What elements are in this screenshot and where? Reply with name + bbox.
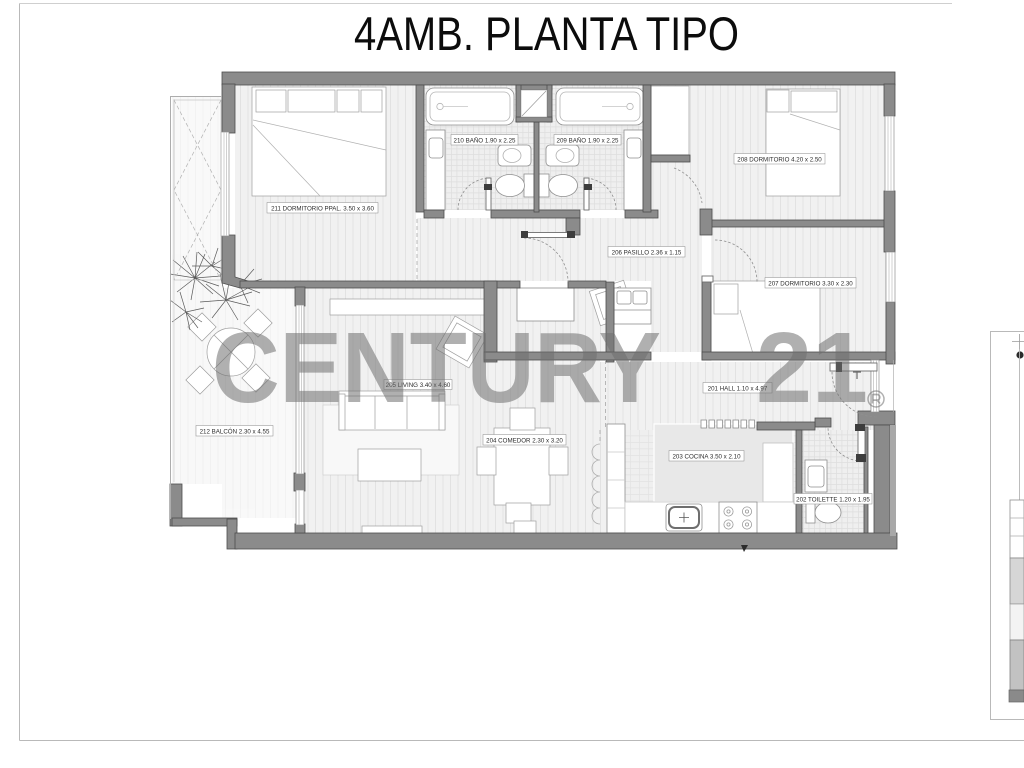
svg-text:202 TOILETTE 1.20 x 1.95: 202 TOILETTE 1.20 x 1.95	[796, 497, 870, 504]
svg-text:209 BAÑO 1.90 x 2.25: 209 BAÑO 1.90 x 2.25	[557, 138, 619, 145]
svg-text:4AMB. PLANTA TIPO: 4AMB. PLANTA TIPO	[354, 7, 739, 60]
svg-text:203 COCINA 3.50 x 2.10: 203 COCINA 3.50 x 2.10	[672, 454, 741, 461]
svg-text:CENTURY: CENTURY	[212, 312, 661, 424]
svg-text:207 DORMITORIO 3.30 x 2.30: 207 DORMITORIO 3.30 x 2.30	[768, 281, 853, 288]
svg-text:21: 21	[756, 312, 868, 424]
svg-text:206 PASILLO 2.36 x 1.15: 206 PASILLO 2.36 x 1.15	[612, 250, 682, 257]
svg-text:210 BAÑO 1.90 x 2.25: 210 BAÑO 1.90 x 2.25	[454, 138, 516, 145]
svg-text:208 DORMITORIO 4.20 x 2.50: 208 DORMITORIO 4.20 x 2.50	[737, 157, 822, 164]
svg-text:211 DORMITORIO PPAL. 3.50 x 3.: 211 DORMITORIO PPAL. 3.50 x 3.60	[271, 206, 374, 213]
svg-text:204 COMEDOR 2.30 x 3.20: 204 COMEDOR 2.30 x 3.20	[486, 438, 563, 445]
svg-text:212 BALCÓN 2.30 x 4.55: 212 BALCÓN 2.30 x 4.55	[200, 429, 270, 436]
